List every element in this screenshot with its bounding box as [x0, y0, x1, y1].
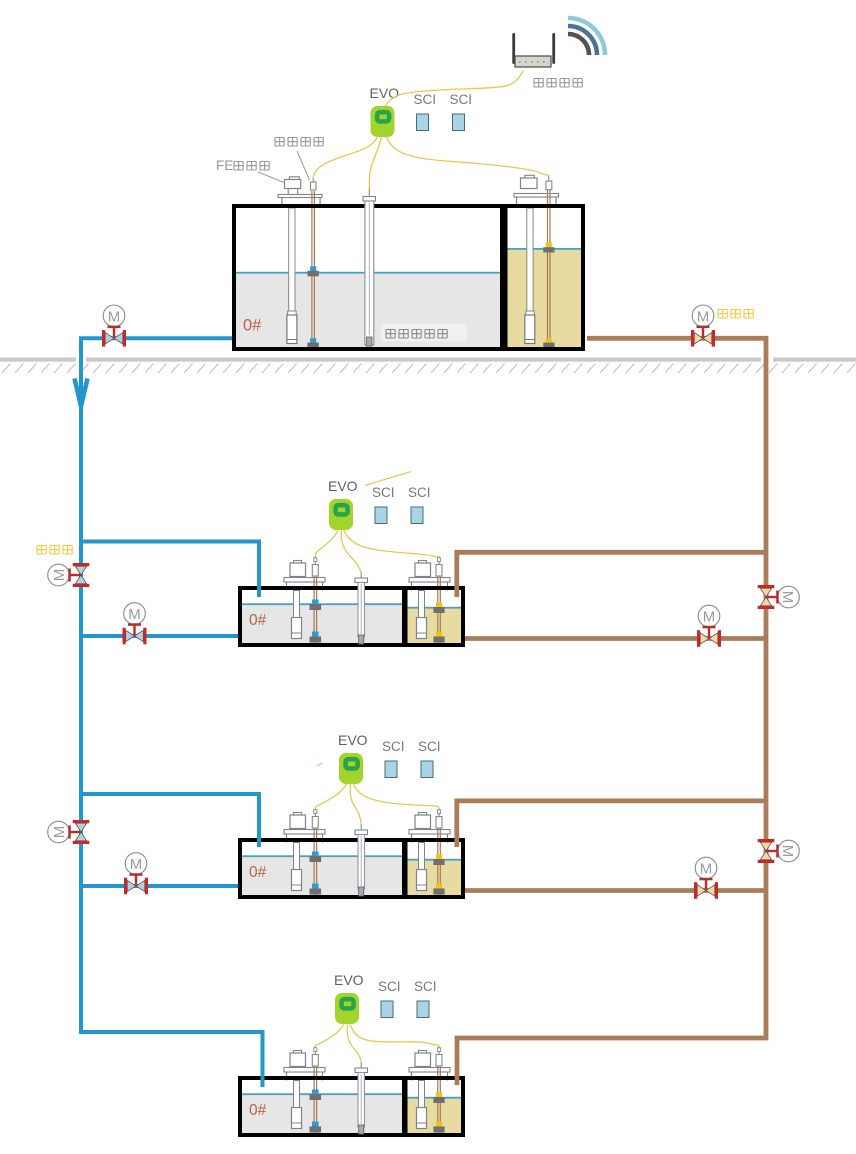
svg-text:FE: FE — [216, 158, 233, 173]
svg-text:0#: 0# — [243, 317, 262, 335]
